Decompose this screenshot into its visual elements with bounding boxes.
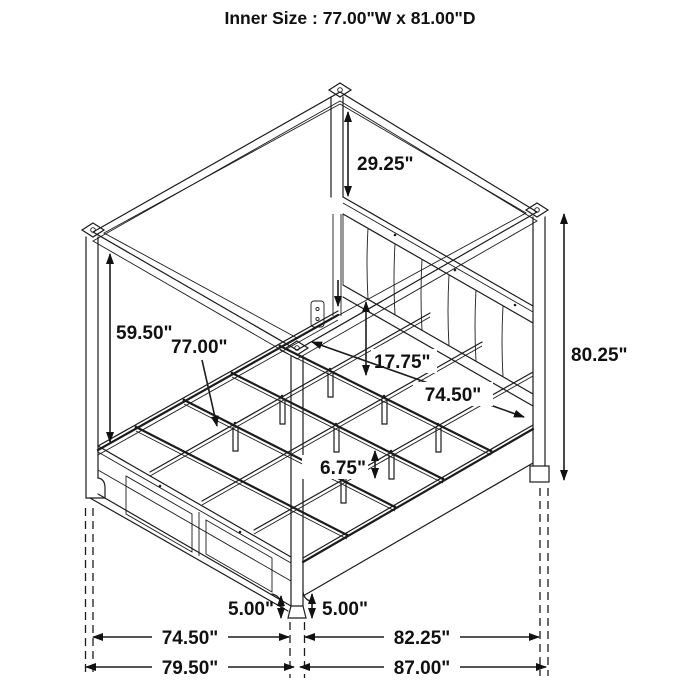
extension-lines xyxy=(86,488,549,678)
dim-leg-height-label: 6.75" xyxy=(320,458,366,479)
dim-floor-clearance-right-label: 5.00" xyxy=(322,599,368,620)
dim-floor-clearance-left: 5.00" xyxy=(228,596,281,620)
dim-outer-depth-label: 87.00" xyxy=(394,658,451,679)
dim-slat-width-label: 77.00" xyxy=(171,337,228,358)
canopy-corner-caps xyxy=(82,83,548,355)
dim-post-span-width: 74.50" xyxy=(93,626,289,649)
dim-rail-to-canopy-label: 59.50" xyxy=(116,323,173,344)
rail-bracket xyxy=(311,280,338,327)
inner-size-title: Inner Size : 77.00"W x 81.00"D xyxy=(224,8,475,28)
front-post xyxy=(288,356,306,618)
dim-post-span-width-label: 74.50" xyxy=(162,628,219,649)
dim-floor-clearance-left-label: 5.00" xyxy=(228,599,274,620)
dim-rail-to-canopy: 59.50" xyxy=(110,254,175,442)
dim-outer-depth: 87.00" xyxy=(300,656,546,679)
dim-outer-width-label: 79.50" xyxy=(162,658,219,679)
bed-dimension-diagram-page: Inner Size : 77.00"W x 81.00"D xyxy=(0,0,700,700)
footboard xyxy=(90,446,291,611)
dim-canopy-to-headboard: 29.25" xyxy=(348,112,414,196)
left-post xyxy=(86,237,105,498)
canopy-bed-dimension-diagram: Inner Size : 77.00"W x 81.00"D xyxy=(0,0,700,700)
dim-total-height-label: 80.25" xyxy=(571,345,628,366)
back-post xyxy=(331,97,343,316)
dim-total-height: 80.25" xyxy=(564,214,628,480)
canopy-frame xyxy=(82,83,548,359)
dim-inner-span-label: 74.50" xyxy=(425,385,482,406)
dim-headboard-clearance-label: 17.75" xyxy=(374,352,431,373)
dim-outer-width: 79.50" xyxy=(86,656,294,679)
dim-post-span-depth-label: 82.25" xyxy=(394,628,451,649)
dim-canopy-to-headboard-label: 29.25" xyxy=(357,154,414,175)
dim-leg-height: 6.75" xyxy=(302,451,375,479)
headboard xyxy=(343,197,533,406)
dim-post-span-depth: 82.25" xyxy=(305,626,539,649)
dim-floor-clearance-right: 5.00" xyxy=(312,594,368,620)
